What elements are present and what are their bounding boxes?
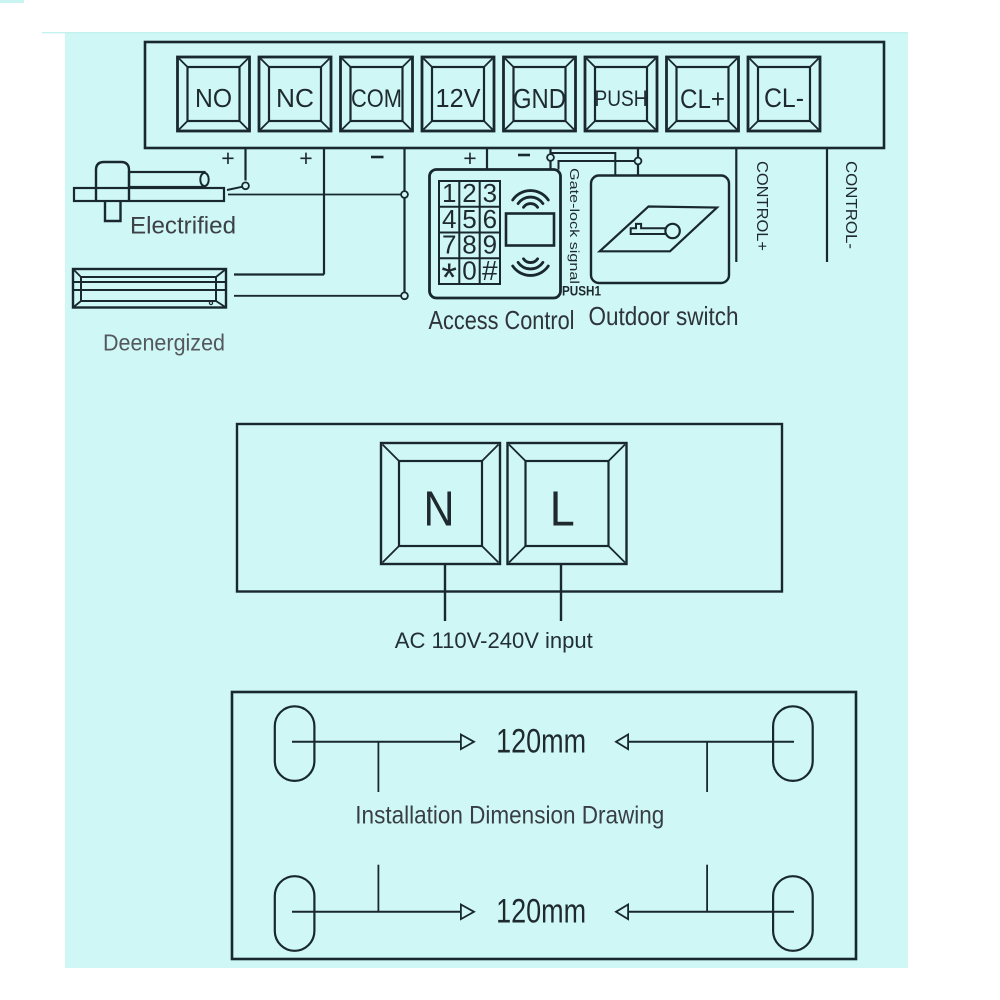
svg-text:Outdoor switch: Outdoor switch — [589, 301, 739, 331]
svg-text:+: + — [463, 145, 476, 171]
svg-text:L: L — [550, 483, 575, 537]
svg-text:GND: GND — [513, 83, 566, 114]
svg-text:AC 110V-240V input: AC 110V-240V input — [395, 628, 593, 653]
svg-text:Installation Dimension Drawing: Installation Dimension Drawing — [355, 802, 664, 830]
svg-text:Deenergized: Deenergized — [103, 330, 225, 356]
svg-text:+: + — [299, 145, 312, 171]
svg-text:120mm: 120mm — [496, 893, 586, 931]
svg-text:CL+: CL+ — [680, 84, 725, 114]
svg-text:PUSH: PUSH — [595, 86, 648, 111]
svg-text:0: 0 — [462, 255, 476, 285]
svg-text:CONTROL+: CONTROL+ — [753, 161, 770, 251]
svg-text:#: # — [482, 255, 498, 286]
svg-text:CL-: CL- — [764, 83, 804, 113]
svg-text:CONTROL-: CONTROL- — [842, 161, 859, 249]
svg-text:Gate-lock signal: Gate-lock signal — [567, 168, 582, 284]
svg-text:NC: NC — [276, 83, 314, 113]
svg-text:N: N — [424, 483, 455, 537]
svg-text:COM: COM — [351, 85, 402, 113]
svg-text:12V: 12V — [436, 83, 482, 113]
svg-text:Access Control: Access Control — [429, 305, 575, 335]
svg-text:+: + — [221, 145, 234, 171]
svg-text:120mm: 120mm — [496, 723, 586, 761]
svg-text:*: * — [441, 256, 457, 300]
svg-text:Electrified: Electrified — [130, 213, 236, 240]
svg-text:PUSH1: PUSH1 — [562, 284, 601, 299]
svg-text:NO: NO — [195, 83, 232, 113]
